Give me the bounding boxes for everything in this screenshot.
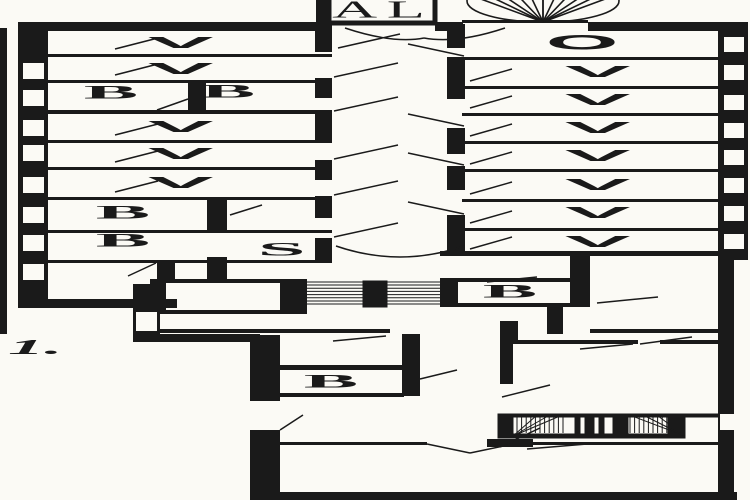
room-label-ward-left-2: V [131, 56, 231, 80]
room-label-ward-right-2: V [548, 87, 648, 111]
spiral-stair-fan-icon [467, 0, 619, 22]
room-label-bath-row7: B [83, 201, 163, 225]
room-label-ward-left-5: V [131, 170, 231, 194]
room-label-ward-right-1: V [548, 59, 648, 83]
room-label-stair-hall: S [242, 238, 322, 262]
room-label-bath-lower-right: B [470, 280, 550, 304]
room-label-oval-room: O [532, 29, 632, 55]
room-label-bath-row3-left: B [71, 81, 151, 105]
room-label-ward-right-3: V [548, 115, 648, 139]
room-label-bath-row3-right: B [188, 80, 268, 104]
room-label-ward-right-4: V [548, 143, 648, 167]
mid-stair-treads [307, 281, 440, 307]
room-label-ward-right-7: V [548, 229, 648, 253]
room-label-ward-right-6: V [548, 200, 648, 224]
elevator-shaft [150, 279, 307, 314]
room-label-vestibule: AL [328, 0, 438, 22]
room-label-bath-lower-middle: B [291, 370, 371, 394]
room-label-ward-left-1: V [131, 30, 231, 54]
room-label-ward-right-5: V [548, 172, 648, 196]
room-label-bath-row8: B [83, 229, 163, 253]
floor-number-label: 1. [8, 334, 98, 362]
lower-stair-hatching [498, 414, 718, 438]
floor-plan: AL V V V V V B B B B S O V V V V V V V B… [0, 0, 750, 500]
corridor-walls [315, 24, 465, 262]
room-label-ward-left-4: V [131, 141, 231, 165]
room-label-ward-left-3: V [131, 114, 231, 138]
